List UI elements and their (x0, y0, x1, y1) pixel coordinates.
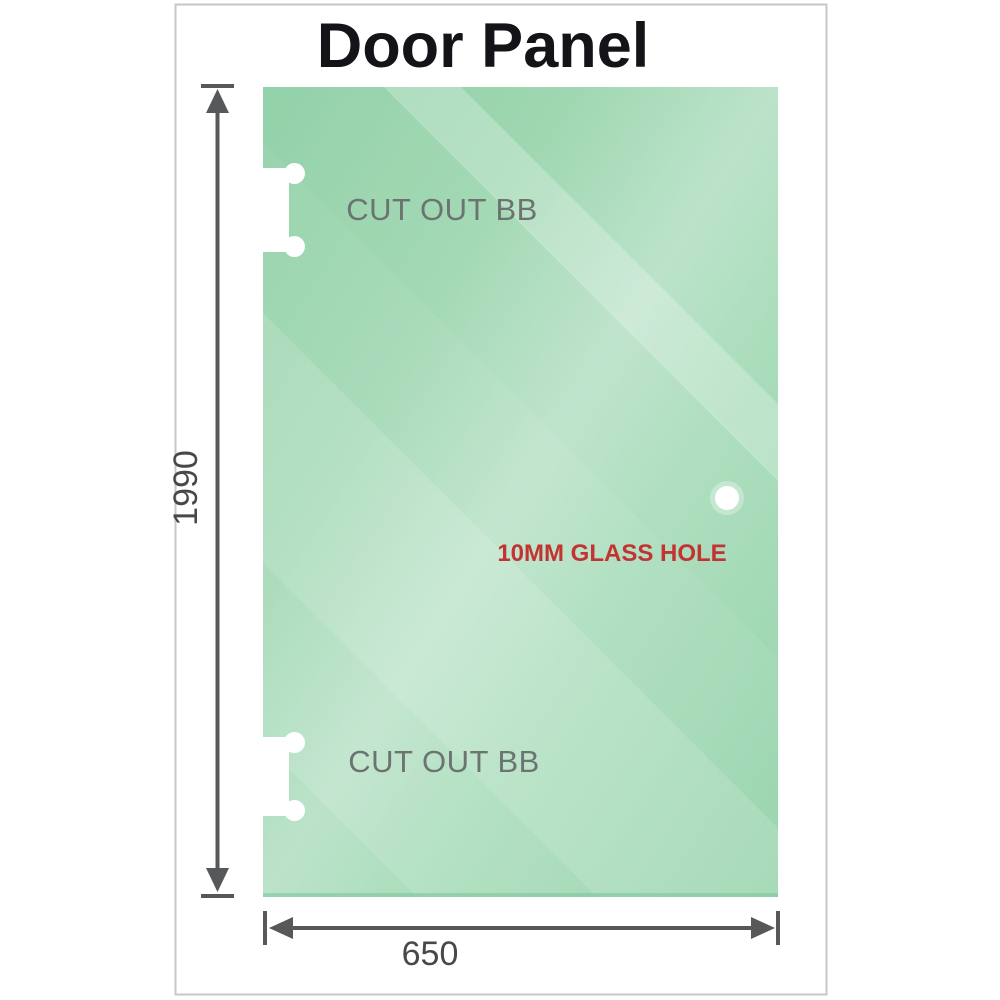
glass-panel (0, 0, 1000, 1000)
diagram-title: Door Panel (317, 11, 650, 81)
dimension-line-horizontal (280, 926, 764, 930)
dimension-line-vertical (216, 100, 220, 882)
height-dimension-label: 1990 (167, 450, 205, 526)
cutout-top-label: CUT OUT BB (346, 192, 538, 227)
glass-hole-icon (710, 481, 744, 515)
glass-reflection-streaks (0, 0, 1000, 1000)
dimension-tick-top (201, 84, 234, 88)
width-dimension-label: 650 (402, 935, 459, 973)
dimension-tick-right (776, 911, 780, 945)
diagram-canvas: Door Panel (0, 0, 1000, 1000)
door-panel-diagram: Door Panel (0, 0, 1000, 1000)
dimension-tick-bottom (201, 894, 234, 898)
glass-hole-label: 10MM GLASS HOLE (497, 540, 726, 567)
dimension-tick-left (263, 911, 267, 945)
cutout-bottom-label: CUT OUT BB (348, 744, 540, 779)
